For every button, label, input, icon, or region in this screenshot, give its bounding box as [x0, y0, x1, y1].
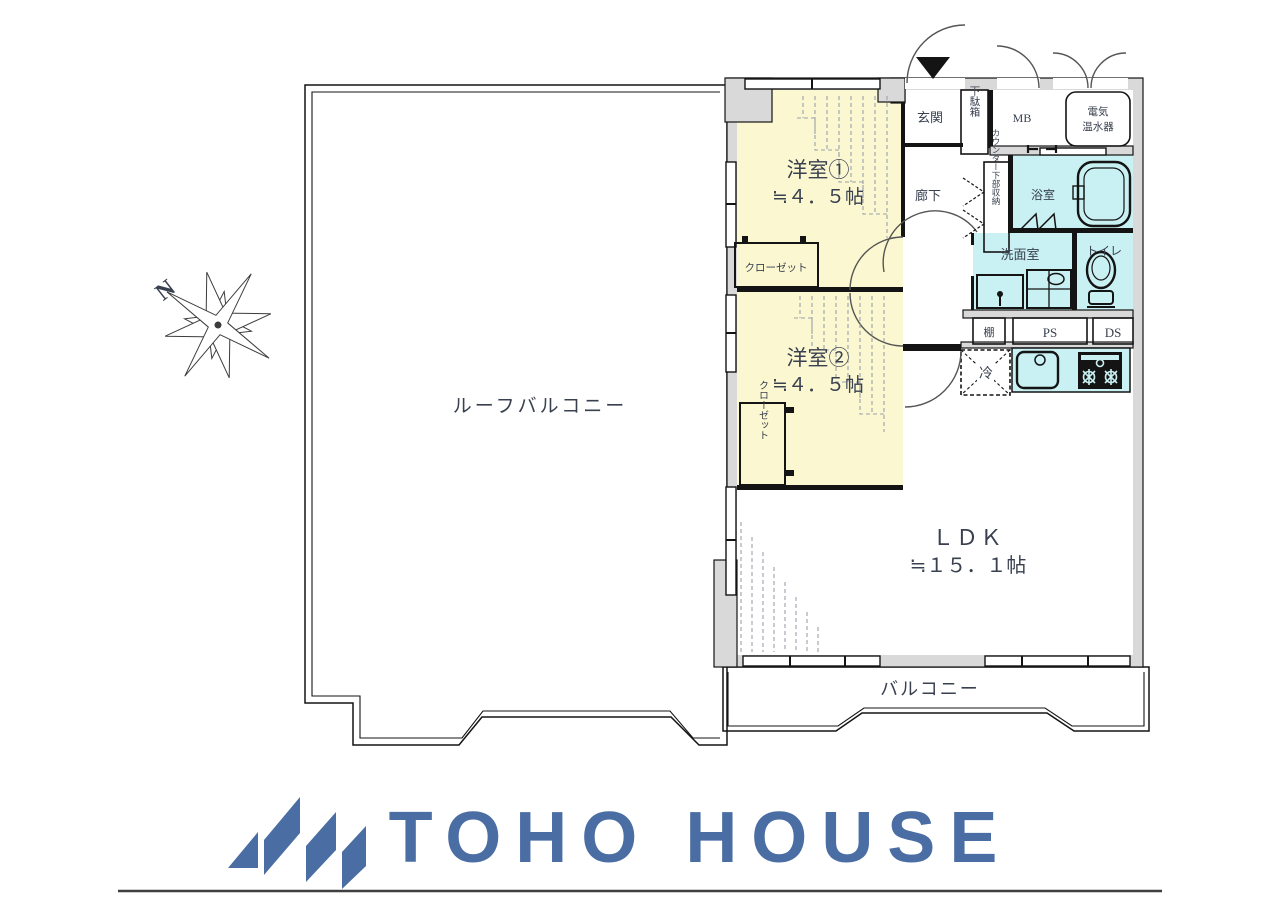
closet-handle-icon	[785, 470, 794, 476]
compass-rose	[116, 223, 321, 428]
logo-mark-stripe	[306, 812, 336, 882]
balcony-parapet-outer	[723, 667, 1149, 731]
floor-plan-page: N ルーフバルコニー バルコニー 洋室① ≒４．５帖 洋室② ≒４．５帖 ＬＤＫ…	[0, 0, 1280, 905]
logo-mark-stripe	[228, 832, 258, 868]
room1-size-label: ≒４．５帖	[772, 186, 864, 208]
entrance-label: 玄関	[917, 110, 943, 125]
logo-mark-stripe	[264, 797, 300, 875]
refrigerator-label: 冷	[979, 366, 993, 382]
ldk-door-leaf	[903, 344, 961, 351]
room2-name-label: 洋室②	[787, 346, 850, 370]
wall-washroom-left-b	[971, 276, 974, 312]
hallway-label: 廊下	[915, 188, 941, 203]
closet1-label: クローゼット	[745, 262, 808, 274]
mb-opening	[997, 78, 1040, 89]
mb-label: MB	[1013, 111, 1032, 125]
wall-bath-bottom	[1008, 228, 1133, 233]
entrance-opening	[905, 78, 965, 89]
wall-entrance-hall	[901, 143, 963, 147]
ps-label: PS	[1043, 325, 1057, 340]
counter-storage-label: カウンター下部収納	[991, 129, 1001, 206]
balcony	[723, 667, 1149, 731]
closet-handle-icon	[800, 236, 806, 244]
room2-size-label: ≒４．５帖	[772, 374, 864, 396]
wall-washroom-bottom	[963, 310, 1133, 318]
balcony-label: バルコニー	[880, 679, 980, 699]
pillar-room1-topright	[878, 78, 905, 102]
ldk-size-label: ≒１５．１帖	[910, 554, 1027, 577]
logo-mark-stripe	[342, 826, 366, 889]
toilet-tank-icon	[1089, 291, 1113, 304]
water-heater-label-1: 電気	[1088, 105, 1110, 118]
logo-house-mark	[228, 797, 366, 889]
logo-text: TOHO HOUSE	[389, 798, 1012, 878]
entrance-triangle-icon	[916, 57, 950, 79]
company-logo: TOHO HOUSE	[118, 797, 1162, 891]
washroom-label: 洗面室	[1000, 247, 1039, 262]
shelf-label: 棚	[984, 325, 995, 339]
closet-handle-icon	[785, 407, 794, 413]
wall-shelf-row-bottom	[961, 342, 1133, 348]
wall-washroom-left-a	[971, 233, 974, 245]
closet-handle-icon	[742, 236, 748, 244]
roof-balcony-label: ルーフバルコニー	[453, 396, 627, 417]
ldk-name-label: ＬＤＫ	[932, 525, 1004, 550]
toilet-label: トイレ	[1086, 244, 1122, 258]
ds-label: DS	[1105, 325, 1122, 340]
window-ldk-bottom-right	[985, 656, 1130, 666]
closet2-label: クローゼット	[757, 380, 769, 440]
compass-north-label: N	[151, 274, 181, 306]
bathtub-icon	[1078, 162, 1130, 226]
window-ldk-bottom-left	[743, 656, 880, 666]
shoe-box-label: 下駄箱	[969, 85, 980, 117]
wall-toilet-left	[1072, 233, 1077, 312]
floor-plan-canvas: N ルーフバルコニー バルコニー 洋室① ≒４．５帖 洋室② ≒４．５帖 ＬＤＫ…	[0, 0, 1280, 905]
bathroom-label: 浴室	[1031, 187, 1055, 202]
kitchen	[1012, 348, 1130, 392]
water-heater-label-2: 温水器	[1082, 121, 1114, 133]
room1-name-label: 洋室①	[787, 158, 850, 182]
faucet-icon	[1035, 355, 1045, 365]
wall-corridor-room1	[901, 90, 905, 237]
